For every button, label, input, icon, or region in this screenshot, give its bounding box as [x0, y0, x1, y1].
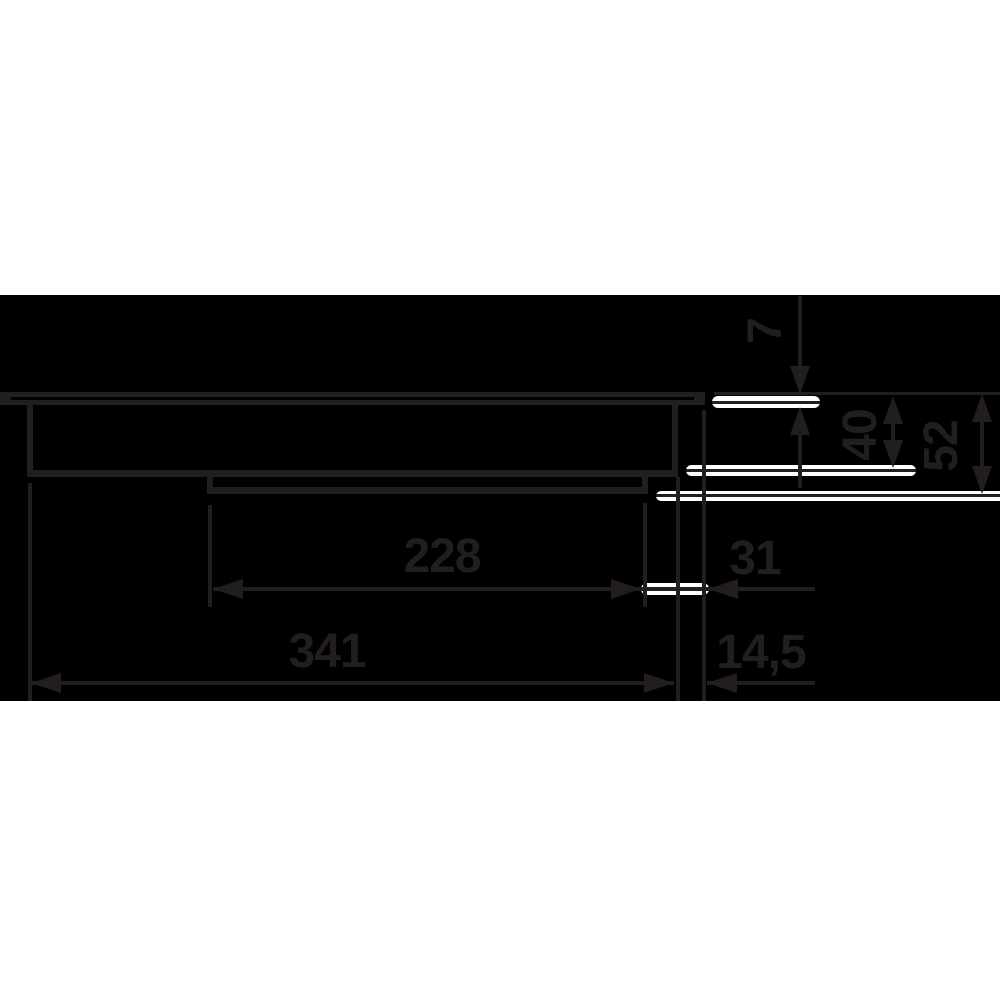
base-level-core-line — [656, 494, 1000, 497]
dim-7-shaft-lower — [798, 435, 802, 488]
extension-line-left — [28, 483, 32, 701]
dim-7-shaft-upper — [798, 296, 802, 366]
dim-228-arrow-left — [213, 579, 243, 599]
glass-right-endcap — [694, 392, 705, 405]
glass-left-endcap — [0, 392, 11, 405]
body-bottom-edge — [27, 470, 678, 477]
lower-tier-right-edge — [642, 477, 648, 494]
body-right-edge — [672, 404, 678, 477]
dim-341-line — [31, 681, 674, 685]
dim-228-line — [213, 587, 641, 591]
dim-7-arrow-down — [790, 366, 810, 394]
extension-line-645 — [643, 503, 647, 607]
glass-bottom-outline — [0, 400, 705, 405]
body-left-edge — [27, 402, 33, 477]
dim-52-shaft — [980, 418, 984, 470]
dim-line-core — [641, 587, 709, 591]
dim-52-arrow-down — [972, 466, 992, 494]
dim-145-label: 14,5 — [716, 629, 805, 677]
worktop-reference-line — [714, 392, 1000, 395]
dim-228-label: 228 — [403, 533, 480, 581]
dim-341-arrow-left — [31, 673, 61, 693]
extension-line-704 — [702, 410, 706, 701]
dim-52-label: 52 — [918, 420, 966, 471]
dim-228-arrow-right — [611, 579, 641, 599]
lower-tier-bottom-edge — [207, 487, 648, 494]
dim-341-label: 341 — [288, 628, 365, 676]
extension-line-678 — [676, 477, 680, 701]
dim-7-arrow-up — [790, 407, 810, 435]
dim-341-arrow-right — [644, 673, 674, 693]
extension-line-210 — [208, 505, 212, 607]
dim-7-label: 7 — [742, 318, 790, 344]
worktop-edge-core-line — [712, 401, 820, 404]
dimension-drawing-canvas: 228 31 341 14,5 7 40 52 — [0, 0, 1000, 1000]
glass-top-outline — [0, 392, 705, 397]
dim-31-label: 31 — [729, 535, 780, 583]
dim-40-label: 40 — [837, 409, 885, 460]
